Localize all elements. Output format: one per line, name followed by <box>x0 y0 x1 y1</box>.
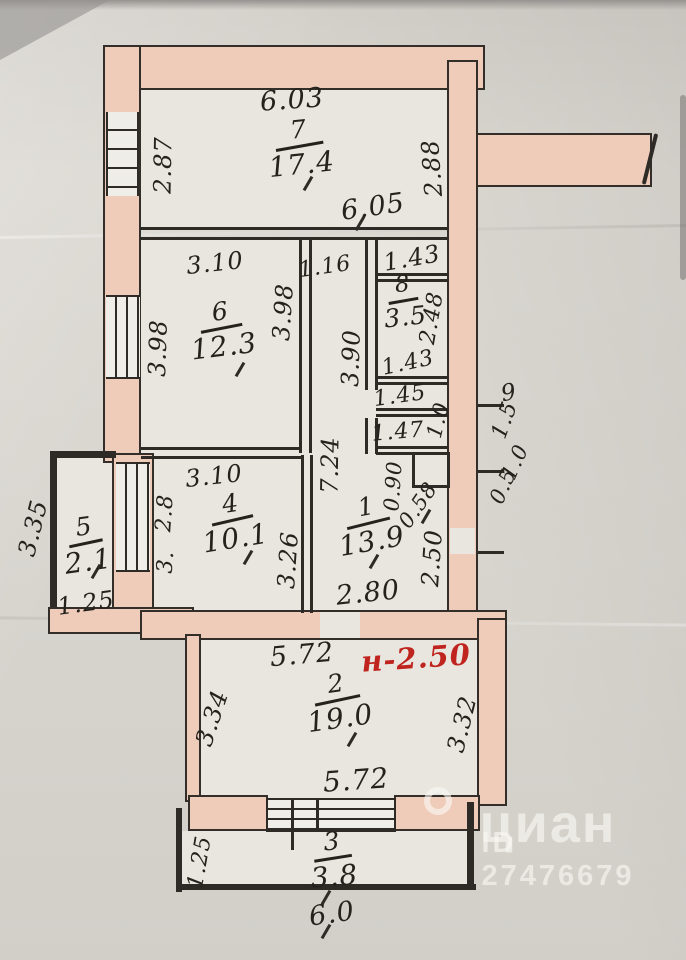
dim-label: 7.24 <box>316 436 345 494</box>
floor-plan-scan: 6.03 7 17.4 2.87 2.88 6.05 3.10 1.16 1.4… <box>0 0 686 960</box>
room-label-4: 4 10.1 <box>195 486 270 558</box>
partition-corridor-cells-upper <box>365 240 378 390</box>
wall-segment-room2-bottom-left <box>188 795 268 831</box>
room-label-3: 3 3.8 <box>307 827 360 893</box>
wall-segment-room5-top <box>50 451 116 458</box>
room-label-7: 7 17.4 <box>264 114 337 183</box>
wall-segment-balcony-right <box>467 802 474 890</box>
paper-edge-mark <box>680 95 686 280</box>
room-label-5: 5 2.1 <box>58 511 114 579</box>
room-label-6: 6 12.3 <box>185 295 258 365</box>
balcony-door-jamb <box>291 798 294 850</box>
wall-segment-right-stub <box>476 133 652 187</box>
dim-label: 2.88 <box>416 138 448 197</box>
room-number: 2 <box>326 670 345 697</box>
cian-logo-icon <box>424 787 452 815</box>
window-symbol-room7 <box>106 112 139 196</box>
dim-label: 3.98 <box>267 282 299 341</box>
room-number: 6 <box>210 298 229 325</box>
window-symbol-room5 <box>116 462 150 572</box>
wall-segment-balcony-left <box>176 808 182 892</box>
door-opening-loggia <box>450 528 475 554</box>
wall-segment-top <box>103 45 485 90</box>
dim-label: 6.0 <box>307 895 357 932</box>
window-symbol-room6 <box>106 295 140 379</box>
room-label-1: 1 13.9 <box>331 489 407 562</box>
wall-segment-left-upper <box>103 45 141 463</box>
room-number: 7 <box>289 116 307 143</box>
room-area: 12.3 <box>189 328 258 365</box>
door-opening-room2 <box>320 612 360 638</box>
dim-label: 1.47 <box>371 417 426 447</box>
dim-label: 5.72 <box>322 761 390 799</box>
window-divider <box>316 800 319 830</box>
room-label-2: 2 19.0 <box>301 666 375 737</box>
wall-segment-room2-right <box>477 618 507 806</box>
dim-label: 6.03 <box>259 82 325 117</box>
dim-label: 3. <box>153 550 180 575</box>
dim-label: 2.50 <box>416 528 448 587</box>
room-area: 2.1 <box>63 543 114 579</box>
paper-edge-shadow <box>0 0 686 10</box>
dim-tick <box>478 551 504 554</box>
room-area: 3.8 <box>309 860 359 893</box>
room-number: 5 <box>74 513 93 540</box>
dim-label: 2.8 <box>151 493 179 533</box>
dim-label: 5.72 <box>269 637 336 673</box>
room-number: 3 <box>322 828 340 854</box>
room-number: 1 <box>356 493 376 520</box>
dim-label: 2.87 <box>149 136 178 194</box>
dim-label: 3.26 <box>272 530 304 589</box>
watermark-id: ID 27476679 <box>481 827 634 893</box>
room-number: 4 <box>220 490 240 517</box>
dim-label: 3.10 <box>185 246 245 280</box>
dim-label: 3.98 <box>143 319 173 377</box>
partition-room7-room6 <box>140 227 448 240</box>
room-number: 8 <box>394 273 411 297</box>
dim-label: 3.35 <box>12 497 53 560</box>
dim-label: 3.90 <box>336 329 366 387</box>
partition-room6-room4 <box>141 447 302 459</box>
